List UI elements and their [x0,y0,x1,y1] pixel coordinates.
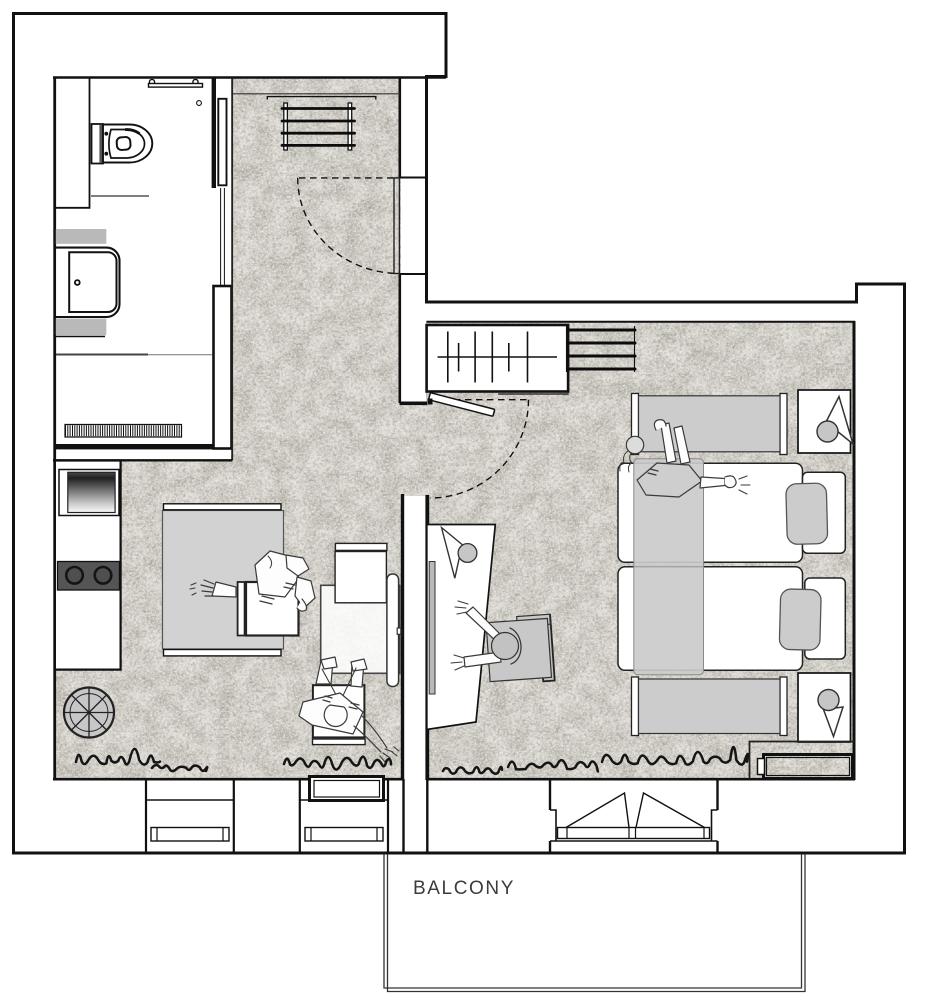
svg-text:BALCONY: BALCONY [413,878,515,899]
